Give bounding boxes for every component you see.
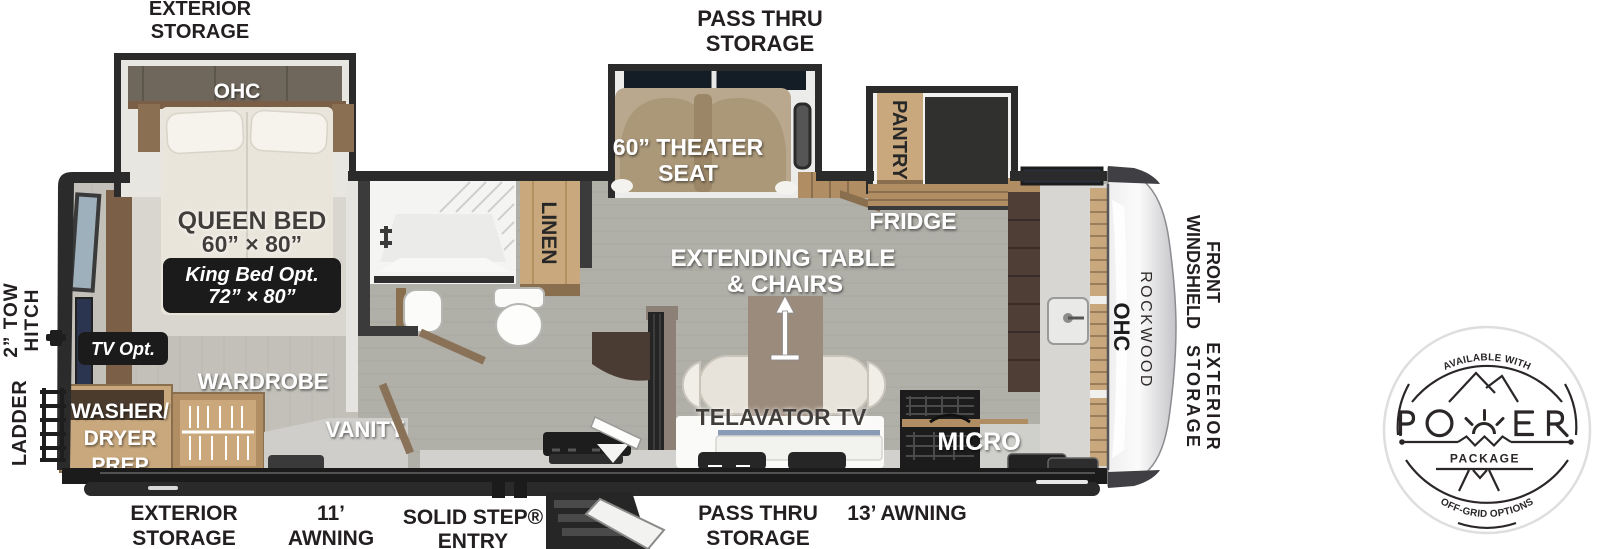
svg-text:DRYER: DRYER: [84, 427, 157, 450]
svg-text:STORAGE: STORAGE: [1183, 345, 1203, 449]
svg-text:AWNING: AWNING: [288, 527, 374, 549]
svg-text:SEAT: SEAT: [658, 160, 718, 186]
svg-text:King Bed Opt.: King Bed Opt.: [185, 264, 318, 286]
svg-text:STORAGE: STORAGE: [706, 527, 809, 549]
svg-text:11’: 11’: [317, 502, 345, 525]
svg-text:60” × 80”: 60” × 80”: [202, 231, 302, 257]
svg-text:STORAGE: STORAGE: [706, 31, 814, 56]
svg-text:PACKAGE: PACKAGE: [1450, 452, 1520, 466]
svg-text:EXTERIOR: EXTERIOR: [149, 0, 252, 20]
svg-text:WASHER/: WASHER/: [71, 400, 169, 423]
svg-text:STORAGE: STORAGE: [132, 527, 235, 549]
svg-text:HITCH: HITCH: [22, 288, 43, 351]
svg-text:13’ AWNING: 13’ AWNING: [847, 502, 966, 525]
svg-text:EXTENDING TABLE: EXTENDING TABLE: [671, 245, 896, 272]
svg-text:EXTERIOR: EXTERIOR: [1203, 342, 1223, 452]
svg-text:& CHAIRS: & CHAIRS: [727, 271, 843, 298]
svg-text:SOLID STEP®: SOLID STEP®: [403, 506, 544, 529]
svg-text:OHC: OHC: [214, 80, 261, 103]
svg-text:PASS THRU: PASS THRU: [698, 502, 818, 525]
svg-text:OHC: OHC: [1109, 303, 1134, 352]
svg-text:LINEN: LINEN: [537, 202, 560, 265]
svg-text:LADDER: LADDER: [9, 380, 31, 466]
svg-text:TV Opt.: TV Opt.: [91, 339, 155, 359]
svg-text:PASS THRU: PASS THRU: [697, 6, 823, 31]
svg-text:EXTERIOR: EXTERIOR: [130, 502, 237, 525]
svg-text:STORAGE: STORAGE: [151, 21, 250, 43]
svg-text:MICRO: MICRO: [937, 428, 1020, 456]
svg-text:PANTRY: PANTRY: [888, 100, 910, 181]
svg-text:FRIDGE: FRIDGE: [870, 208, 957, 234]
svg-text:2” TOW: 2” TOW: [1, 282, 22, 357]
svg-text:72” × 80”: 72” × 80”: [208, 286, 295, 308]
svg-text:WARDROBE: WARDROBE: [198, 369, 329, 394]
svg-text:ROCKWOOD: ROCKWOOD: [1137, 271, 1154, 389]
svg-text:FRONT: FRONT: [1203, 241, 1223, 303]
svg-text:ENTRY: ENTRY: [438, 530, 508, 549]
svg-text:WINDSHIELD: WINDSHIELD: [1183, 215, 1203, 329]
svg-text:60” THEATER: 60” THEATER: [613, 134, 764, 160]
svg-text:TELAVATOR TV: TELAVATOR TV: [696, 404, 867, 430]
